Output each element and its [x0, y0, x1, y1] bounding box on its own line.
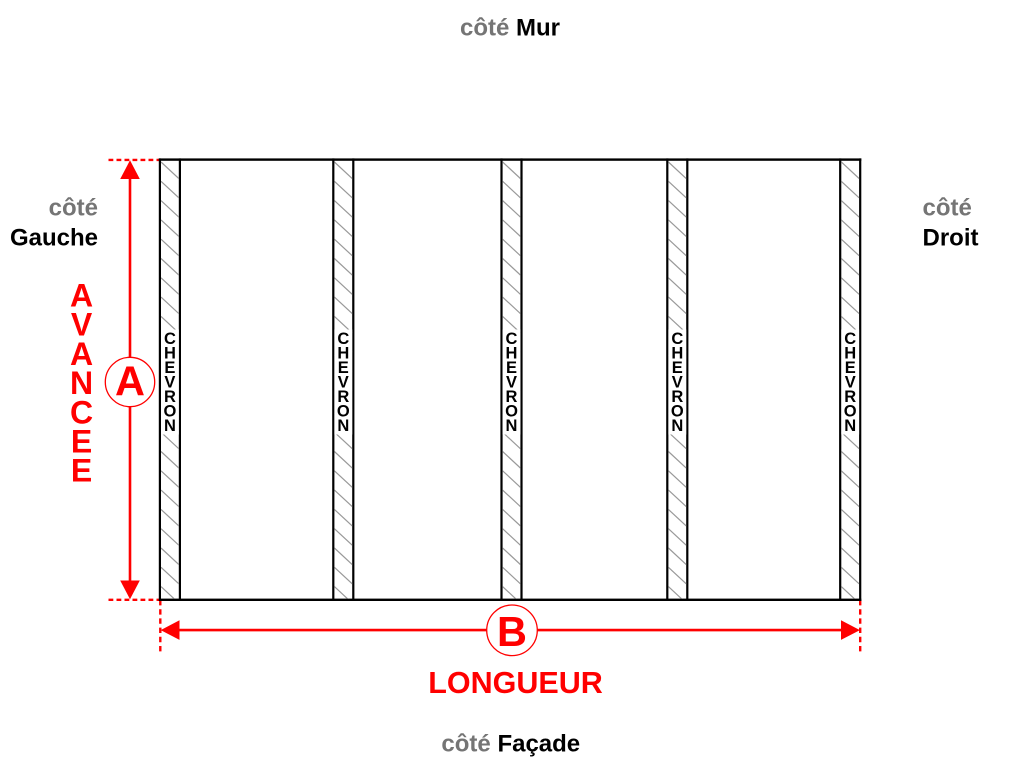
svg-text:côté: côté	[49, 195, 98, 222]
svg-text:N: N	[844, 417, 856, 435]
svg-text:N: N	[671, 417, 683, 435]
svg-text:N: N	[506, 417, 518, 435]
svg-text:N: N	[164, 417, 176, 435]
svg-text:Droit: Droit	[923, 225, 979, 252]
svg-text:B: B	[497, 608, 527, 655]
svg-text:LONGUEUR: LONGUEUR	[428, 666, 603, 700]
svg-text:A: A	[115, 357, 145, 404]
svg-text:E: E	[71, 453, 92, 489]
svg-text:côté Façade: côté Façade	[441, 730, 580, 757]
svg-text:N: N	[337, 417, 349, 435]
svg-text:côté Mur: côté Mur	[460, 15, 560, 42]
svg-text:Gauche: Gauche	[10, 225, 98, 252]
svg-text:côté: côté	[923, 195, 972, 222]
